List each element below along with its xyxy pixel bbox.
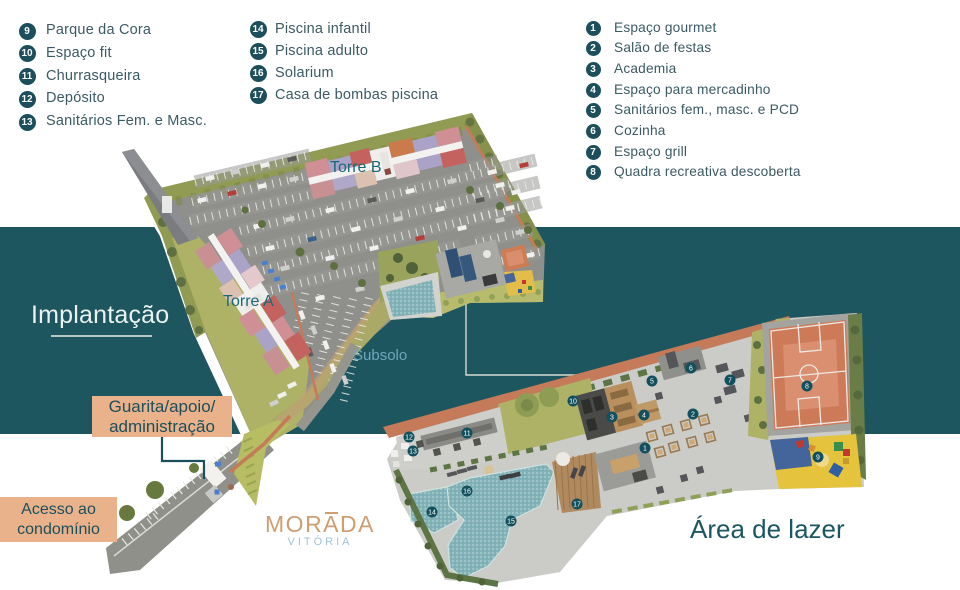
svg-text:14: 14 <box>428 509 436 516</box>
svg-text:15: 15 <box>507 518 515 525</box>
svg-text:8: 8 <box>805 383 809 390</box>
svg-text:4: 4 <box>642 412 646 419</box>
svg-text:2: 2 <box>691 411 695 418</box>
svg-text:1: 1 <box>643 445 647 452</box>
svg-text:17: 17 <box>573 501 581 508</box>
svg-text:7: 7 <box>728 377 732 384</box>
svg-text:10: 10 <box>569 398 577 405</box>
svg-text:6: 6 <box>689 365 693 372</box>
svg-text:11: 11 <box>463 430 470 437</box>
svg-text:5: 5 <box>650 378 654 385</box>
svg-text:3: 3 <box>610 414 614 421</box>
svg-text:9: 9 <box>816 454 820 461</box>
svg-text:12: 12 <box>405 434 413 441</box>
svg-text:16: 16 <box>463 488 471 495</box>
svg-text:13: 13 <box>409 448 417 455</box>
